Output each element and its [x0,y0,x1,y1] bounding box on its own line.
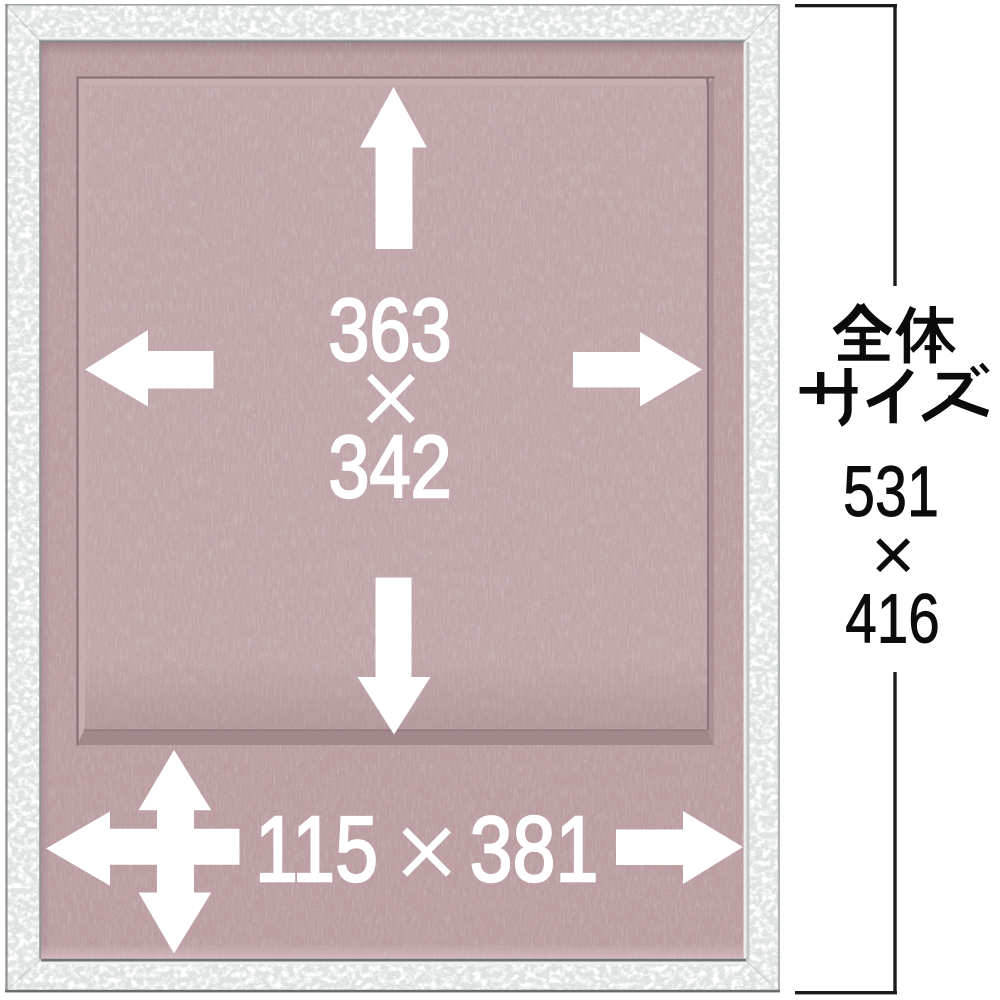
svg-text:416: 416 [845,580,940,658]
svg-text:363: 363 [328,281,451,380]
svg-text:115: 115 [255,798,378,901]
svg-text:342: 342 [328,418,451,517]
svg-text:381: 381 [470,798,599,901]
svg-text:531: 531 [843,452,939,531]
